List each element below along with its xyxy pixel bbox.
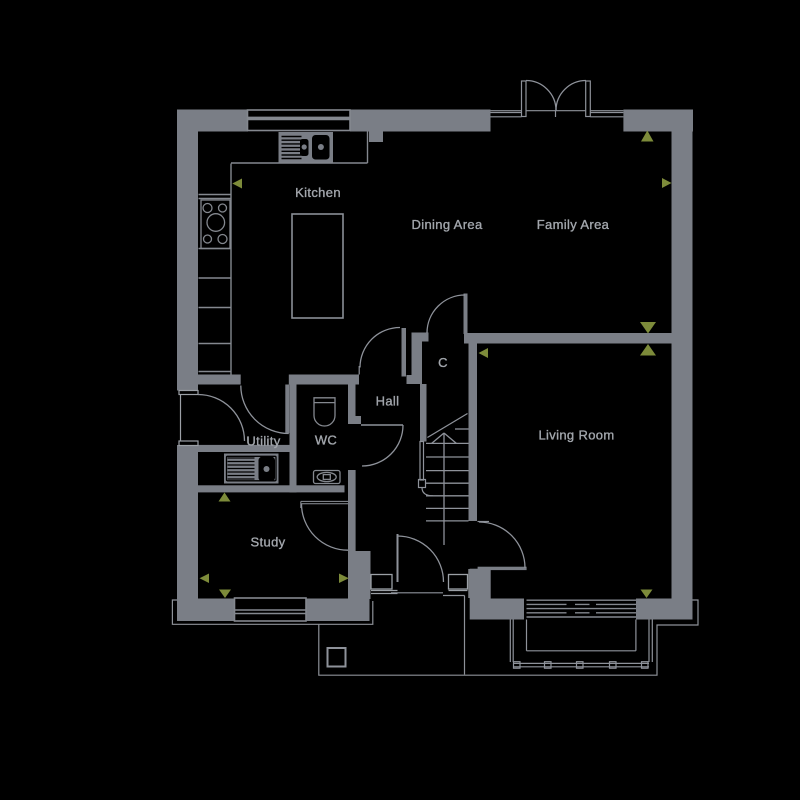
svg-text:Living Room: Living Room [538,428,614,443]
svg-text:Kitchen: Kitchen [295,185,341,200]
svg-text:Dining Area: Dining Area [411,217,482,232]
svg-text:Utility: Utility [246,434,280,449]
svg-text:C: C [438,355,448,370]
svg-text:Family Area: Family Area [537,217,610,232]
svg-text:WC: WC [315,433,337,448]
svg-text:Hall: Hall [376,394,400,409]
svg-text:Study: Study [251,535,286,550]
